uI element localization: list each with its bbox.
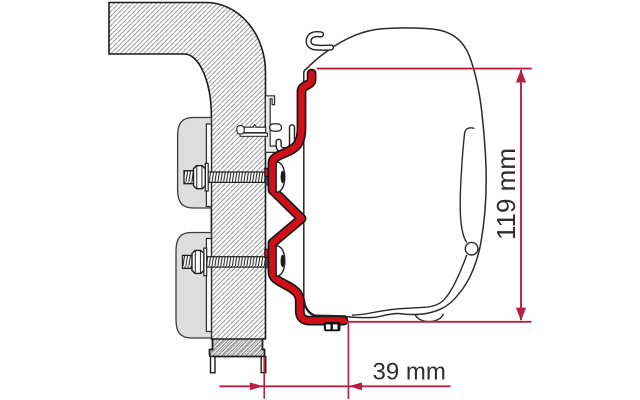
svg-text:39 mm: 39 mm <box>373 359 446 386</box>
svg-text:119 mm: 119 mm <box>491 148 521 240</box>
